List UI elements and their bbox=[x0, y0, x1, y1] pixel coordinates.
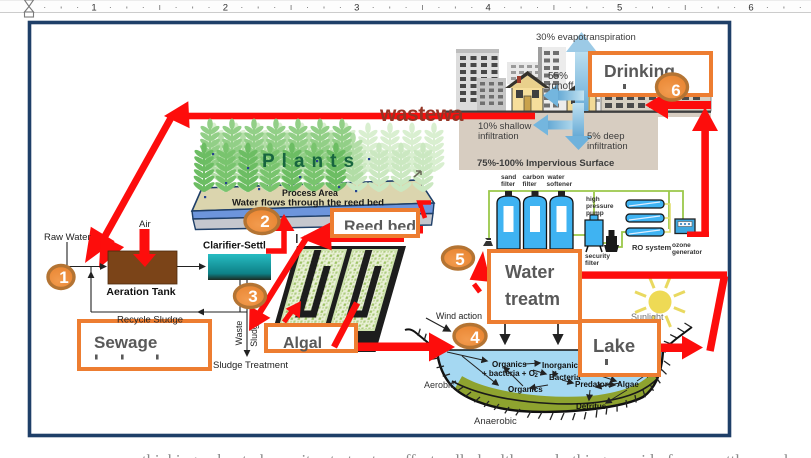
svg-text:security: security bbox=[585, 253, 610, 260]
svg-text:Plants: Plants bbox=[262, 151, 361, 172]
svg-text:filter: filter bbox=[585, 260, 600, 267]
svg-text:Air: Air bbox=[139, 219, 151, 230]
svg-text:RO system: RO system bbox=[632, 243, 672, 252]
svg-text:generator: generator bbox=[672, 249, 702, 256]
svg-text:Lake: Lake bbox=[593, 335, 635, 356]
svg-text:runoff: runoff bbox=[548, 81, 574, 92]
svg-text:Water flows through the reed b: Water flows through the reed bed bbox=[232, 198, 384, 209]
svg-text:Aeration Tank: Aeration Tank bbox=[106, 286, 175, 298]
svg-text:+ bacteria + O: + bacteria + O bbox=[482, 369, 535, 378]
svg-text:Sewage: Sewage bbox=[94, 333, 157, 352]
svg-text:Algae: Algae bbox=[617, 380, 639, 389]
svg-text:infiltration: infiltration bbox=[478, 131, 519, 142]
svg-text:filter: filter bbox=[523, 181, 538, 188]
svg-text:Sludge Treatment: Sludge Treatment bbox=[213, 360, 288, 371]
svg-text:wastewa: wastewa bbox=[379, 103, 464, 126]
svg-text:Algal: Algal bbox=[283, 335, 322, 352]
svg-text:5: 5 bbox=[455, 250, 464, 269]
svg-text:sand: sand bbox=[501, 174, 516, 181]
svg-text:Water: Water bbox=[505, 262, 554, 282]
svg-text:Inorganics: Inorganics bbox=[542, 361, 583, 370]
svg-text:high: high bbox=[586, 196, 600, 203]
svg-text:infiltration: infiltration bbox=[587, 141, 628, 152]
svg-text:Wind action: Wind action bbox=[436, 311, 482, 321]
svg-text:75%-100% Impervious Surface: 75%-100% Impervious Surface bbox=[477, 158, 614, 169]
svg-text:2: 2 bbox=[260, 212, 269, 231]
svg-text:pressure: pressure bbox=[586, 203, 614, 210]
svg-text:water: water bbox=[547, 174, 565, 181]
svg-text:Clarifier-Settl: Clarifier-Settl bbox=[203, 241, 266, 252]
svg-text:30% evapotranspiration: 30% evapotranspiration bbox=[536, 32, 636, 43]
svg-text:Aerobic: Aerobic bbox=[424, 380, 455, 390]
svg-text:Detritus: Detritus bbox=[576, 402, 607, 411]
svg-text:Process Area: Process Area bbox=[282, 188, 338, 198]
svg-text:treatm: treatm bbox=[505, 289, 560, 309]
svg-text:6: 6 bbox=[671, 81, 680, 100]
svg-text:Recycle Sludge: Recycle Sludge bbox=[117, 315, 183, 326]
svg-text:Anaerobic: Anaerobic bbox=[474, 416, 517, 427]
svg-text:filter: filter bbox=[501, 181, 516, 188]
svg-text:carbon: carbon bbox=[523, 174, 545, 181]
svg-text:3: 3 bbox=[248, 287, 257, 306]
svg-text:4: 4 bbox=[470, 328, 480, 347]
svg-text:Raw Water: Raw Water bbox=[44, 232, 91, 243]
svg-text:1: 1 bbox=[59, 268, 68, 287]
svg-text:Waste: Waste bbox=[234, 321, 244, 346]
svg-text:softener: softener bbox=[547, 181, 573, 188]
svg-text:Organics: Organics bbox=[492, 360, 527, 369]
svg-text:ozone: ozone bbox=[672, 242, 691, 249]
